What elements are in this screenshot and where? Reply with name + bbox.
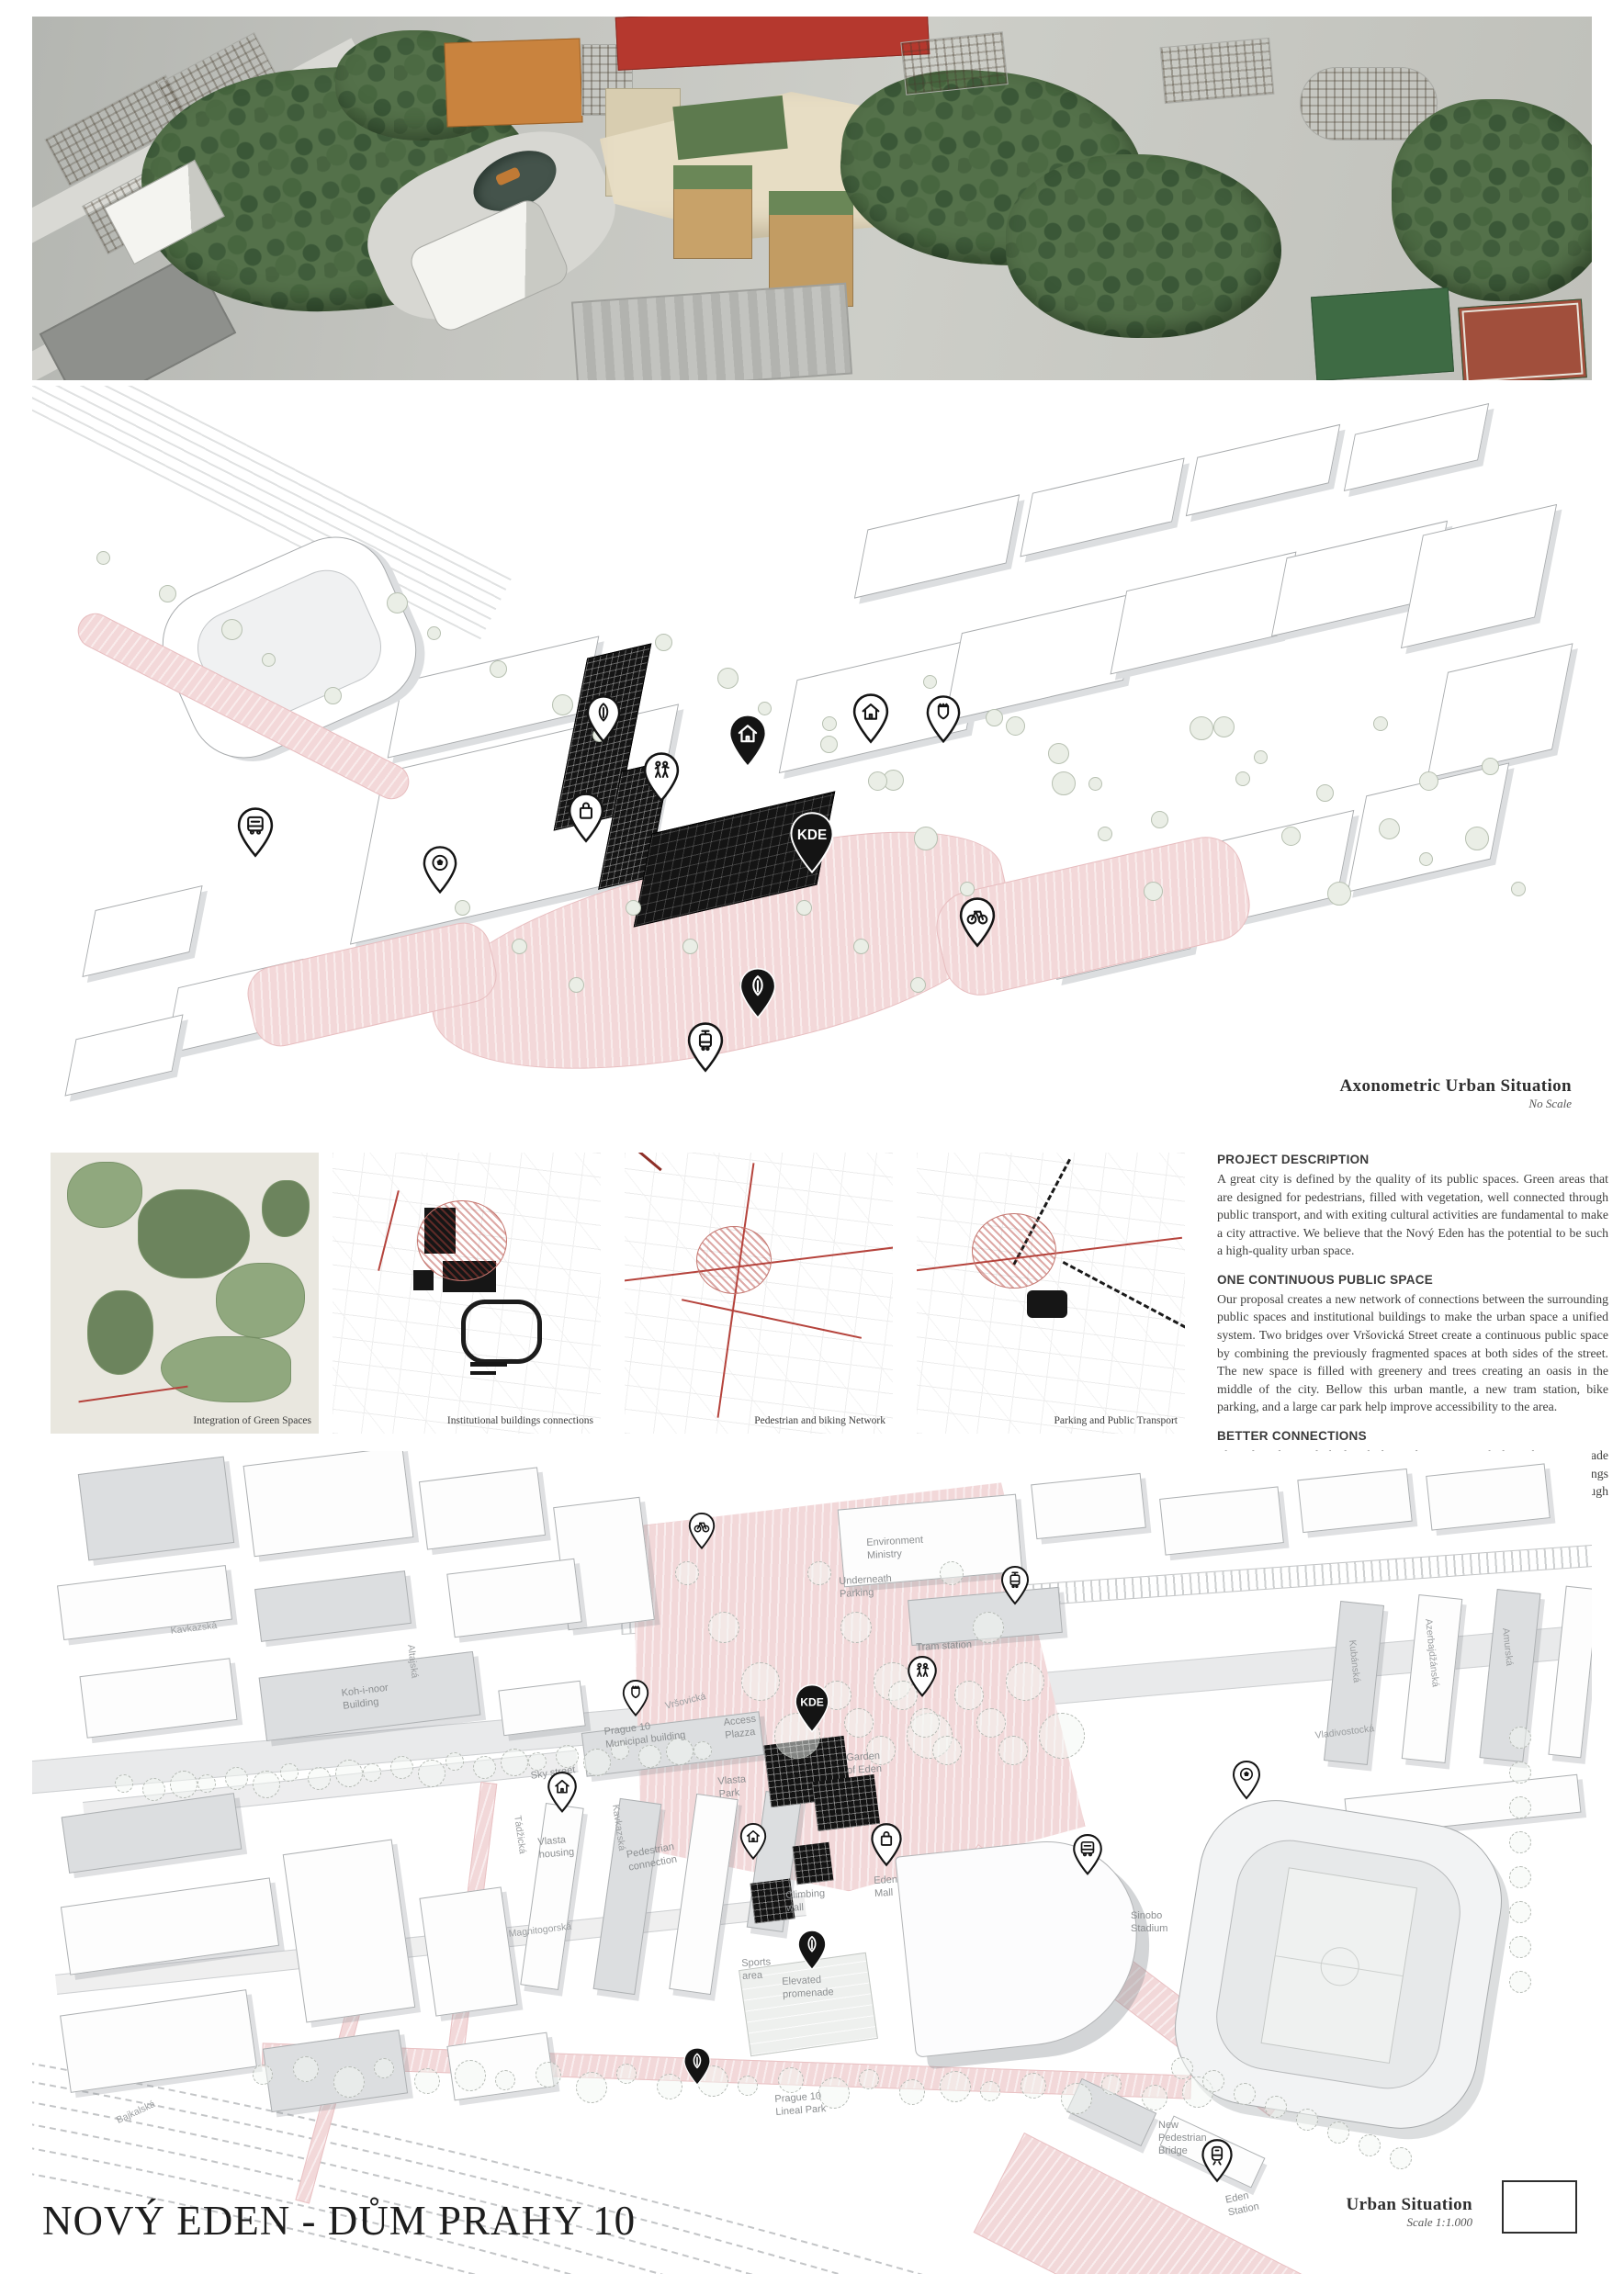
map-caption: Institutional buildings connections	[447, 1415, 593, 1426]
axonometric-diagram: KDE Axonometric Urban Situation No Scale	[32, 386, 1592, 1137]
tree	[1511, 882, 1526, 896]
tree	[569, 977, 584, 993]
tree	[1379, 818, 1400, 839]
tennis-court	[1458, 298, 1587, 380]
tree	[1144, 882, 1163, 901]
tree	[910, 1708, 940, 1738]
tree	[717, 668, 739, 689]
tree	[445, 1752, 464, 1771]
label-eden-mall: Eden Mall	[874, 1874, 898, 1901]
diagram-map-green-spaces: Integration of Green Spaces	[51, 1153, 319, 1434]
tree	[414, 2068, 440, 2094]
soccer-ball-pin	[1230, 1760, 1263, 1800]
tree	[225, 1767, 248, 1790]
axon-caption: Axonometric Urban Situation	[1339, 1076, 1572, 1097]
tree	[1373, 716, 1388, 731]
prague10-crest-pin	[620, 1679, 651, 1717]
tree	[1061, 2083, 1092, 2114]
axon-building	[1344, 403, 1489, 491]
tree	[501, 1749, 528, 1776]
plan-caption: Urban Situation	[1347, 2195, 1472, 2215]
tree	[1151, 811, 1168, 828]
tree	[1213, 716, 1235, 737]
tree	[657, 2074, 682, 2099]
tree	[998, 1736, 1028, 1765]
tree	[914, 827, 938, 850]
tree	[142, 1778, 165, 1801]
tan-tower-green-roof	[673, 165, 752, 189]
tree	[455, 2060, 486, 2091]
axon-building	[64, 1014, 183, 1096]
tree	[427, 626, 441, 640]
tree	[1465, 827, 1489, 850]
plan-caption-group: Urban Situation Scale 1:1.000	[1347, 2195, 1472, 2230]
map-art	[625, 1153, 893, 1434]
svg-text:KDE: KDE	[800, 1696, 824, 1709]
tree	[682, 939, 698, 954]
tree	[1021, 2073, 1046, 2099]
tree	[1039, 1713, 1085, 1759]
tree	[1098, 827, 1112, 841]
axon-building	[1111, 551, 1297, 674]
trees-right	[1006, 154, 1281, 338]
tree	[655, 634, 672, 651]
section-body: A great city is defined by the quality o…	[1217, 1170, 1608, 1260]
tree	[576, 2072, 607, 2103]
tree	[293, 2056, 319, 2082]
tree	[853, 939, 869, 954]
axon-building	[1020, 457, 1184, 557]
plan-building	[419, 1467, 546, 1549]
tree	[1509, 1727, 1531, 1749]
tree	[1509, 1831, 1531, 1853]
competition-board: KDE Axonometric Urban Situation No Scale…	[0, 0, 1624, 2296]
building-white-far	[1160, 38, 1275, 104]
tree	[552, 694, 573, 715]
tree	[253, 2065, 273, 2085]
tree	[1088, 777, 1102, 791]
tree	[694, 1741, 712, 1760]
leaf-pin-2	[681, 2046, 714, 2087]
tree	[1265, 2096, 1287, 2118]
tree	[1316, 784, 1334, 802]
stamp-box	[1502, 2180, 1577, 2234]
prague10-crest-pin	[923, 694, 964, 744]
tree	[708, 1612, 739, 1643]
tram-pin	[998, 1565, 1032, 1605]
axon-caption-group: Axonometric Urban Situation No Scale	[1339, 1076, 1572, 1111]
label-sports-area: Sports area	[741, 1956, 772, 1983]
tree	[1048, 743, 1069, 764]
pedestrians-pin	[640, 751, 682, 803]
tree	[840, 1612, 872, 1643]
tree	[536, 2062, 561, 2088]
tree	[1171, 2057, 1193, 2079]
tree	[1296, 2109, 1318, 2131]
tree	[221, 619, 242, 640]
tree	[796, 900, 812, 916]
tree	[844, 1708, 874, 1738]
section-heading: BETTER CONNECTIONS	[1217, 1429, 1608, 1443]
trees-far-right	[1392, 99, 1592, 301]
pedestrians-pin	[905, 1655, 940, 1697]
tree	[741, 1662, 780, 1701]
tree	[820, 736, 838, 753]
tree	[940, 1561, 964, 1585]
kde-pin: KDE	[791, 1683, 833, 1734]
bus-pin	[234, 806, 276, 858]
house-pin	[545, 1771, 580, 1813]
tree	[1390, 2147, 1412, 2169]
axon-scale-note: No Scale	[1339, 1097, 1572, 1111]
map-caption: Parking and Public Transport	[1054, 1415, 1179, 1426]
building-orange	[444, 38, 582, 127]
house-pin	[850, 692, 892, 744]
diagram-map-pedestrian-biking: Pedestrian and biking Network	[625, 1153, 893, 1434]
stadium-roof	[571, 283, 852, 380]
section-body: Our proposal creates a new network of co…	[1217, 1290, 1608, 1416]
tree	[280, 1763, 299, 1782]
tree	[335, 1760, 363, 1787]
tree	[1327, 2122, 1349, 2144]
soccer-ball-pin	[420, 845, 460, 895]
tree	[390, 1756, 413, 1779]
tree	[512, 939, 527, 954]
tree	[1254, 750, 1268, 764]
tree	[262, 653, 276, 667]
tree	[1482, 758, 1499, 775]
tree	[626, 900, 641, 916]
section-heading: ONE CONTINUOUS PUBLIC SPACE	[1217, 1273, 1608, 1287]
house-pin-black	[725, 713, 771, 769]
tree	[1509, 1866, 1531, 1888]
kde-pin: KDE	[785, 810, 839, 875]
label-access-plazza: Access Plazza	[723, 1714, 759, 1743]
tree	[973, 1612, 1004, 1643]
bicycle-pin	[956, 896, 998, 948]
tree	[1281, 827, 1301, 846]
map-art	[917, 1153, 1185, 1434]
tree	[923, 675, 937, 689]
map-caption: Pedestrian and biking Network	[754, 1415, 885, 1426]
tree	[910, 977, 926, 993]
plan-building	[78, 1457, 234, 1561]
tree	[638, 1745, 661, 1768]
tree	[1419, 852, 1433, 866]
plan-building	[419, 1886, 517, 2016]
tree	[1006, 716, 1025, 736]
tree	[859, 2069, 879, 2089]
axon-building	[854, 494, 1020, 598]
map-art	[51, 1153, 319, 1434]
tree	[1509, 1761, 1531, 1784]
axon-building	[82, 885, 202, 977]
tree	[1142, 2085, 1167, 2110]
label-vlasta-park: Vlasta Park	[717, 1773, 748, 1801]
tree	[583, 1749, 611, 1776]
label-prague10-lineal-park: Prague 10 Lineal Park	[774, 2090, 827, 2119]
tree	[1101, 2075, 1122, 2095]
tree	[1190, 716, 1213, 740]
tree	[1509, 1901, 1531, 1923]
plan-building	[283, 1840, 416, 2023]
tree	[976, 1708, 1006, 1738]
label-underneath-parking: Underneath Parking	[839, 1573, 893, 1601]
plan-building	[1031, 1473, 1146, 1539]
tree	[954, 1681, 984, 1710]
football-pitch	[1261, 1867, 1418, 2064]
kde-building-plan	[793, 1842, 834, 1885]
tree	[374, 2058, 394, 2078]
label-climbing-wall: Climbing wall	[785, 1888, 826, 1916]
tree	[115, 1774, 133, 1793]
board-title: NOVÝ EDEN - DŮM PRAHY 10	[42, 2197, 636, 2245]
tree	[899, 2079, 925, 2105]
axon-building	[944, 591, 1141, 722]
leaf-pin	[583, 694, 624, 744]
label-garden-of-eden: Garden of Eden	[846, 1750, 882, 1777]
tree	[738, 2076, 758, 2096]
tree	[1006, 1662, 1044, 1701]
shopping-bag-pin	[868, 1822, 905, 1867]
tree	[960, 882, 975, 896]
leaf-pin-black	[736, 966, 780, 1020]
train-pin	[1199, 2138, 1235, 2183]
tree	[1052, 771, 1076, 795]
tree	[1234, 2083, 1256, 2105]
label-elevated-promenade: Elevated promenade	[782, 1974, 834, 2001]
tree	[490, 660, 507, 678]
tree	[197, 1774, 216, 1793]
label-environment-ministry: Environment Ministry	[866, 1535, 924, 1563]
diagram-map-institutional: Institutional buildings connections	[333, 1153, 601, 1434]
bicycle-pin	[686, 1512, 717, 1550]
tree	[1509, 1796, 1531, 1818]
description-section: PROJECT DESCRIPTION A great city is defi…	[1217, 1153, 1608, 1260]
tree	[986, 709, 1003, 726]
tree	[473, 1756, 496, 1779]
plan-building	[838, 1494, 1023, 1588]
tree	[96, 551, 110, 565]
axon-building	[1186, 424, 1340, 516]
tree	[324, 687, 342, 704]
tree	[1359, 2134, 1381, 2156]
tree	[1235, 771, 1250, 786]
tree	[1419, 771, 1438, 791]
tree	[308, 1767, 331, 1790]
tree	[675, 1561, 699, 1585]
leaf-pin	[795, 1929, 829, 1971]
svg-text:KDE: KDE	[797, 827, 827, 843]
tree	[868, 771, 887, 791]
tree	[940, 2071, 971, 2102]
tree	[333, 2066, 365, 2098]
tennis-court	[1311, 287, 1454, 380]
urban-situation-plan: KavkazskáAltajskáKoh-i-noor BuildingVršo…	[32, 1451, 1592, 2274]
map-art	[333, 1153, 601, 1434]
tree	[418, 1760, 445, 1787]
tan-tower-green-roof	[769, 191, 853, 215]
aerial-render	[32, 17, 1592, 380]
tree	[363, 1763, 381, 1782]
tree	[807, 1561, 831, 1585]
building-white-far	[900, 31, 1008, 95]
shopping-bag-pin	[565, 792, 607, 843]
building-red	[615, 17, 930, 71]
diagram-map-parking-transport: Parking and Public Transport	[917, 1153, 1185, 1434]
tree	[455, 900, 470, 916]
tree	[170, 1771, 197, 1798]
tree	[387, 592, 408, 613]
tree	[495, 2070, 515, 2090]
tree	[1327, 882, 1351, 906]
label-sinobo-stadium: Sinobo Stadium	[1131, 1910, 1167, 1936]
label-vlasta-housing: Vlasta housing	[537, 1834, 575, 1863]
tree	[932, 1736, 962, 1765]
tree	[616, 2064, 637, 2084]
map-caption: Integration of Green Spaces	[193, 1415, 311, 1426]
tram-pin	[684, 1021, 727, 1073]
tree	[1509, 1971, 1531, 1993]
bus-pin	[1070, 1833, 1105, 1875]
tree	[1509, 1936, 1531, 1958]
plan-scale-note: Scale 1:1.000	[1347, 2215, 1472, 2230]
tree	[980, 2081, 1000, 2101]
tree	[159, 585, 176, 602]
axon-building	[1427, 643, 1573, 779]
house-pin-2	[738, 1822, 769, 1861]
tree	[822, 716, 837, 731]
tree	[778, 2067, 804, 2093]
description-section: ONE CONTINUOUS PUBLIC SPACE Our proposal…	[1217, 1273, 1608, 1416]
section-heading: PROJECT DESCRIPTION	[1217, 1153, 1608, 1166]
tree	[1202, 2070, 1224, 2092]
tree	[253, 1771, 280, 1798]
